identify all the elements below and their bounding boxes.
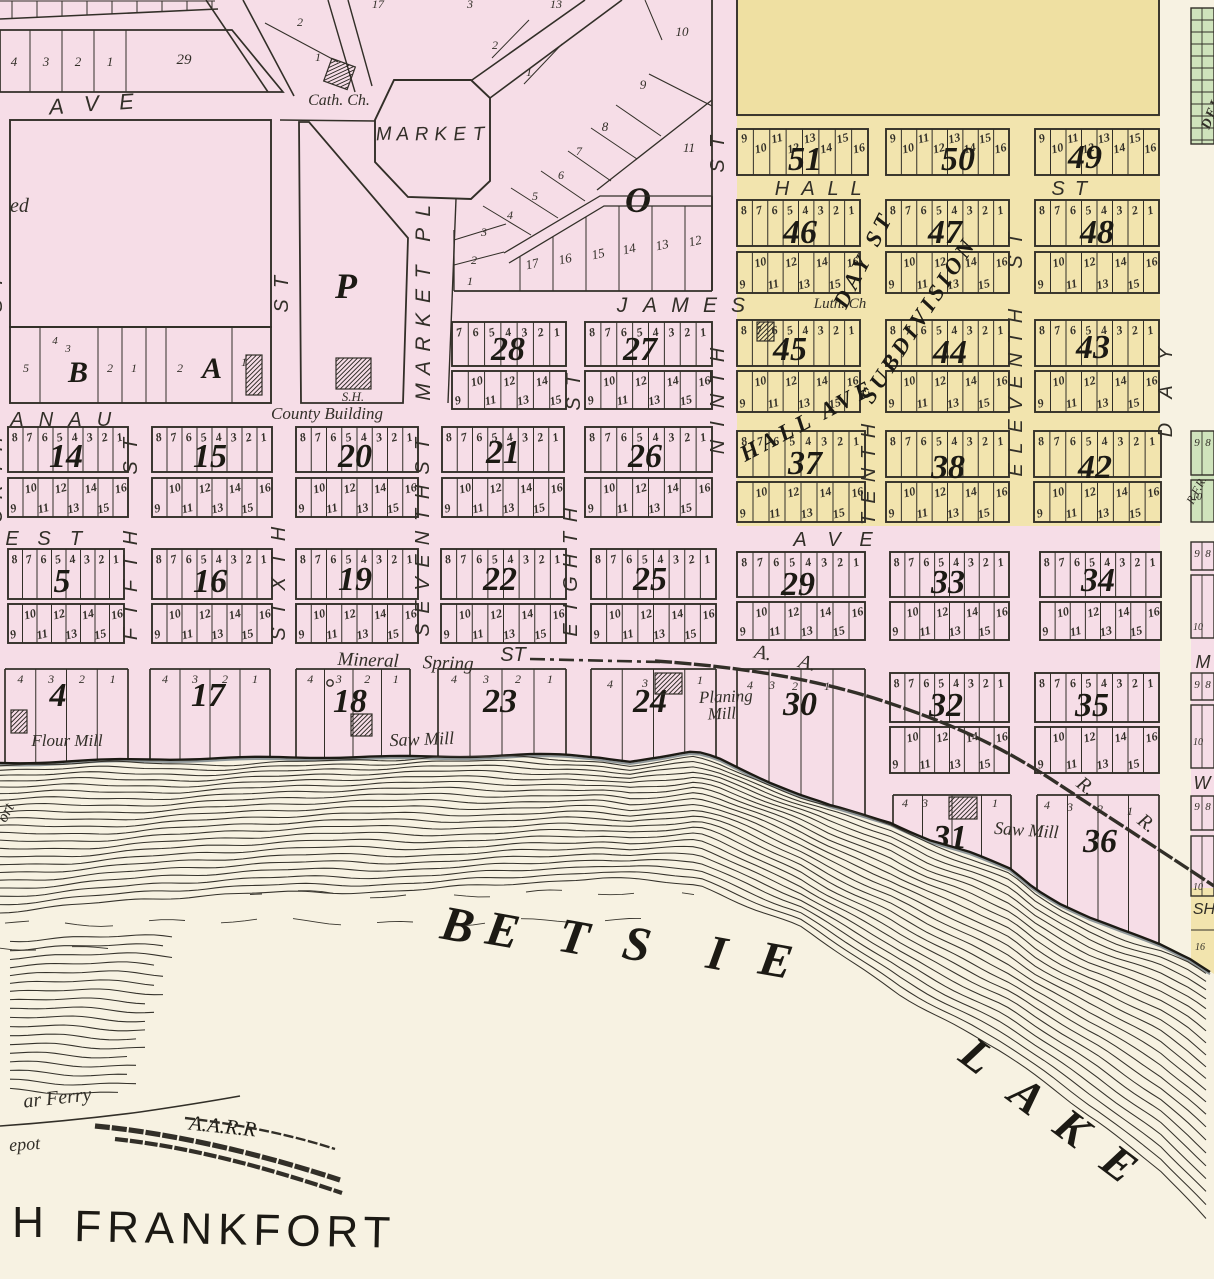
svg-text:L: L [827, 178, 838, 200]
svg-text:4: 4 [11, 54, 18, 69]
svg-text:S: S [563, 397, 585, 411]
svg-text:5: 5 [532, 189, 538, 203]
svg-text:I: I [707, 421, 729, 427]
svg-text:A: A [395, 124, 410, 146]
svg-text:epot: epot [8, 1133, 41, 1155]
svg-text:H: H [12, 1198, 44, 1247]
svg-text:H: H [1005, 308, 1027, 323]
svg-text:42: 42 [1077, 449, 1112, 486]
svg-text:1: 1 [697, 673, 703, 687]
svg-text:S: S [268, 627, 290, 641]
svg-text:3: 3 [64, 343, 71, 355]
svg-text:16: 16 [1195, 942, 1205, 953]
svg-text:T: T [268, 551, 290, 565]
svg-text:34: 34 [1080, 562, 1115, 599]
svg-text:H: H [858, 423, 880, 438]
svg-text:F: F [120, 578, 142, 592]
svg-text:45: 45 [772, 331, 807, 368]
svg-text:T: T [1005, 330, 1027, 344]
svg-text:T: T [120, 436, 142, 450]
svg-text:51: 51 [788, 141, 822, 178]
svg-text:T: T [858, 511, 880, 525]
svg-text:2: 2 [177, 361, 183, 375]
svg-text:4: 4 [507, 208, 513, 222]
svg-text:2: 2 [75, 54, 82, 69]
svg-text:8: 8 [1205, 437, 1211, 449]
svg-text:W: W [1194, 773, 1213, 793]
svg-text:M: M [412, 383, 435, 401]
svg-text:T: T [707, 134, 729, 148]
svg-text:T: T [0, 274, 7, 288]
svg-text:26: 26 [627, 438, 662, 475]
svg-text:37: 37 [787, 445, 824, 482]
svg-text:ed: ed [10, 195, 30, 217]
svg-text:P: P [412, 228, 435, 242]
svg-text:4: 4 [607, 677, 613, 691]
svg-text:G: G [560, 576, 582, 592]
svg-text:T: T [563, 372, 585, 386]
svg-text:E: E [412, 288, 435, 303]
svg-text:H: H [707, 347, 729, 362]
svg-text:5: 5 [54, 563, 71, 600]
svg-text:2: 2 [297, 15, 303, 29]
svg-text:29: 29 [177, 52, 193, 68]
svg-text:10: 10 [1193, 737, 1203, 748]
svg-text:T: T [1075, 178, 1089, 200]
svg-text:E: E [412, 554, 434, 568]
svg-text:4: 4 [307, 672, 313, 686]
svg-text:1: 1 [1127, 804, 1133, 818]
svg-text:Flour Mill: Flour Mill [30, 731, 103, 750]
svg-text:33: 33 [930, 564, 965, 601]
svg-text:25: 25 [632, 561, 667, 598]
svg-text:T: T [412, 507, 434, 521]
svg-text:E: E [1005, 463, 1027, 477]
svg-text:M: M [1196, 652, 1211, 672]
svg-text:48: 48 [1079, 214, 1114, 251]
svg-text:S: S [37, 528, 51, 550]
svg-text:T: T [412, 263, 435, 278]
svg-text:17: 17 [372, 0, 385, 11]
svg-text:Y: Y [1155, 346, 1177, 361]
svg-text:1: 1 [547, 672, 553, 686]
svg-text:N: N [707, 393, 729, 408]
svg-text:Spring: Spring [422, 652, 473, 675]
svg-text:L: L [412, 205, 435, 217]
svg-text:E: E [1005, 419, 1027, 433]
svg-text:1: 1 [131, 361, 137, 375]
svg-text:8: 8 [1205, 801, 1211, 813]
svg-text:8: 8 [1205, 679, 1211, 691]
svg-text:27: 27 [622, 331, 659, 368]
svg-text:A: A [792, 529, 806, 551]
svg-text:Saw Mill: Saw Mill [389, 728, 454, 750]
svg-text:22: 22 [482, 561, 517, 598]
svg-text:2: 2 [79, 672, 85, 686]
svg-text:10: 10 [676, 24, 690, 39]
svg-text:9: 9 [640, 77, 647, 92]
svg-text:E: E [703, 294, 718, 317]
svg-text:4: 4 [1044, 798, 1050, 812]
svg-text:SH: SH [1193, 901, 1214, 918]
svg-text:1: 1 [110, 672, 116, 686]
svg-text:2: 2 [107, 361, 113, 375]
svg-text:36: 36 [1082, 823, 1117, 860]
svg-text:I: I [268, 606, 290, 612]
svg-text:4: 4 [747, 678, 753, 692]
svg-text:4: 4 [902, 796, 908, 810]
svg-text:S.H.: S.H. [342, 389, 364, 404]
svg-text:A: A [200, 352, 222, 385]
svg-text:V: V [827, 529, 842, 551]
svg-text:6: 6 [558, 168, 564, 182]
svg-text:T: T [858, 445, 880, 459]
svg-text:R: R [0, 485, 7, 499]
svg-text:I: I [560, 604, 582, 610]
svg-text:43: 43 [1075, 329, 1110, 366]
svg-text:49: 49 [1067, 139, 1102, 176]
svg-text:R: R [412, 336, 435, 351]
svg-text:H: H [268, 526, 290, 541]
svg-text:8: 8 [602, 119, 609, 134]
svg-text:9: 9 [1194, 437, 1200, 449]
svg-text:T: T [1005, 231, 1027, 245]
svg-text:19: 19 [338, 561, 372, 598]
svg-text:13: 13 [550, 0, 562, 11]
svg-text:K: K [412, 312, 435, 327]
svg-text:15: 15 [193, 438, 227, 475]
svg-text:9: 9 [1194, 801, 1200, 813]
svg-text:2: 2 [792, 679, 798, 693]
svg-text:J: J [616, 294, 628, 317]
svg-text:E: E [859, 529, 873, 551]
svg-text:23: 23 [482, 683, 517, 720]
svg-text:S: S [412, 623, 434, 637]
svg-text:E: E [1005, 375, 1027, 389]
svg-text:30: 30 [782, 686, 817, 723]
svg-text:K: K [434, 124, 449, 146]
svg-text:O: O [625, 180, 651, 220]
svg-text:N: N [707, 439, 729, 454]
svg-text:A: A [641, 294, 657, 317]
svg-text:H: H [412, 484, 434, 499]
svg-text:2: 2 [492, 38, 498, 52]
svg-text:H: H [560, 507, 582, 522]
svg-text:X: X [268, 577, 290, 592]
svg-text:Cath. Ch.: Cath. Ch. [308, 92, 370, 109]
svg-text:20: 20 [337, 438, 372, 475]
svg-text:T: T [560, 530, 582, 544]
svg-text:3: 3 [921, 796, 928, 810]
svg-text:County Building: County Building [271, 404, 383, 423]
svg-text:S: S [731, 294, 745, 317]
svg-text:44: 44 [932, 334, 967, 371]
svg-text:F: F [120, 626, 142, 640]
svg-text:V: V [1005, 396, 1027, 411]
svg-text:H: H [775, 178, 790, 200]
svg-text:S: S [120, 461, 142, 475]
svg-text:S: S [1051, 178, 1065, 200]
svg-text:V: V [412, 576, 434, 591]
svg-text:M: M [671, 294, 689, 317]
svg-text:1: 1 [252, 672, 258, 686]
svg-text:S: S [271, 299, 293, 313]
svg-text:T: T [120, 554, 142, 568]
svg-text:38: 38 [930, 449, 965, 486]
svg-text:L: L [1005, 442, 1027, 453]
svg-text:N: N [858, 467, 880, 482]
svg-text:E: E [560, 623, 582, 637]
svg-text:50: 50 [941, 141, 975, 178]
svg-text:1: 1 [107, 54, 114, 69]
svg-text:P: P [334, 266, 358, 306]
svg-text:E: E [858, 490, 880, 504]
svg-text:1: 1 [393, 672, 399, 686]
svg-text:4: 4 [162, 672, 168, 686]
svg-text:D: D [1155, 423, 1177, 437]
svg-text:16: 16 [193, 563, 227, 600]
svg-text:11: 11 [683, 140, 695, 155]
svg-text:H: H [120, 530, 142, 545]
svg-text:4: 4 [52, 335, 58, 347]
svg-text:9: 9 [1194, 679, 1200, 691]
svg-text:21: 21 [485, 434, 520, 471]
svg-text:M: M [375, 124, 392, 146]
svg-text:H: H [560, 553, 582, 568]
svg-text:I: I [120, 607, 142, 613]
svg-text:E: E [5, 528, 19, 550]
svg-text:4: 4 [451, 672, 457, 686]
svg-text:S: S [1005, 255, 1027, 269]
svg-text:T: T [271, 274, 293, 288]
svg-text:4: 4 [49, 677, 67, 714]
svg-text:B: B [67, 356, 88, 389]
svg-text:Mill: Mill [706, 704, 736, 724]
svg-text:1: 1 [467, 274, 473, 288]
svg-text:E: E [453, 124, 467, 146]
svg-text:A: A [800, 178, 814, 200]
svg-text:4: 4 [17, 672, 23, 686]
svg-text:8: 8 [1205, 548, 1211, 560]
svg-text:FRANKFORT: FRANKFORT [74, 1202, 397, 1258]
svg-text:46: 46 [782, 214, 817, 251]
svg-text:35: 35 [1074, 687, 1109, 724]
svg-text:28: 28 [490, 331, 525, 368]
svg-text:3: 3 [641, 676, 648, 690]
svg-text:E: E [118, 89, 135, 115]
svg-text:10: 10 [1193, 622, 1203, 633]
svg-text:E: E [412, 600, 434, 614]
svg-text:A: A [412, 361, 435, 377]
svg-text:7: 7 [576, 144, 583, 158]
svg-text:N: N [1005, 352, 1027, 367]
svg-text:A: A [46, 94, 64, 120]
svg-text:10: 10 [1193, 882, 1203, 893]
svg-text:S: S [0, 299, 7, 313]
svg-text:S: S [707, 159, 729, 173]
svg-text:H: H [0, 436, 7, 451]
svg-text:U: U [0, 508, 7, 523]
svg-text:3: 3 [466, 0, 473, 11]
svg-text:L: L [850, 178, 861, 200]
svg-text:ST: ST [500, 644, 527, 666]
svg-text:5: 5 [23, 361, 29, 375]
svg-text:17: 17 [191, 677, 227, 714]
svg-text:N: N [412, 530, 434, 545]
svg-text:T: T [707, 370, 729, 384]
svg-text:1: 1 [992, 796, 998, 810]
svg-text:3: 3 [1066, 800, 1073, 814]
svg-text:3: 3 [42, 54, 50, 69]
svg-text:A: A [1155, 385, 1177, 399]
svg-text:14: 14 [49, 438, 83, 475]
svg-text:R: R [414, 124, 429, 146]
svg-text:T: T [0, 460, 7, 474]
svg-text:29: 29 [780, 566, 815, 603]
svg-text:9: 9 [1194, 548, 1200, 560]
svg-text:S: S [412, 461, 434, 475]
svg-text:T: T [412, 436, 434, 450]
svg-text:3: 3 [768, 678, 775, 692]
svg-text:T: T [70, 528, 84, 550]
